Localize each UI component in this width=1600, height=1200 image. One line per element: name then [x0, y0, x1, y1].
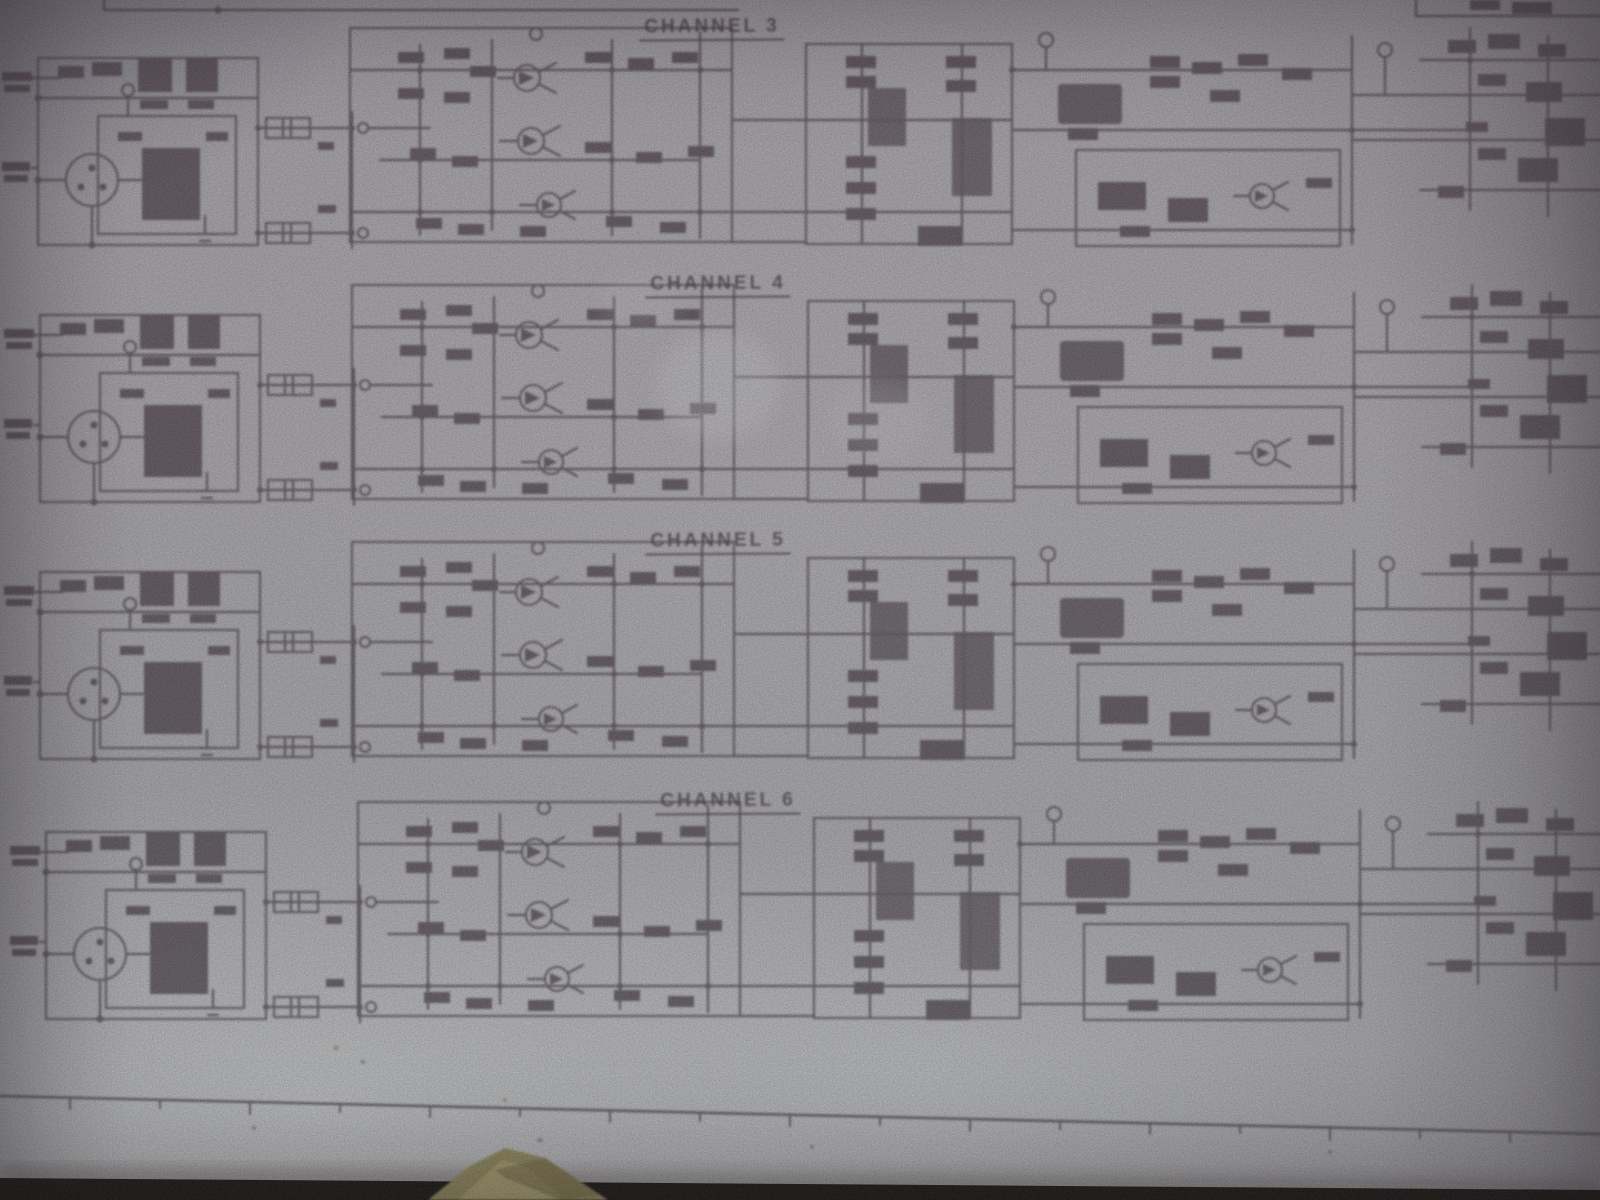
channel-label-5: CHANNEL 5 — [645, 529, 791, 555]
channel-label-3: CHANNEL 3 — [639, 15, 785, 41]
channel-label-4: CHANNEL 4 — [645, 272, 791, 298]
grain-light — [0, 0, 1600, 1200]
schematic-svg — [0, 0, 1600, 1200]
channel-label-6: CHANNEL 6 — [655, 789, 801, 815]
photo-of-schematic-sheet: CHANNEL 3 CHANNEL 4 CHANNEL 5 CHANNEL 6 — [0, 0, 1600, 1200]
